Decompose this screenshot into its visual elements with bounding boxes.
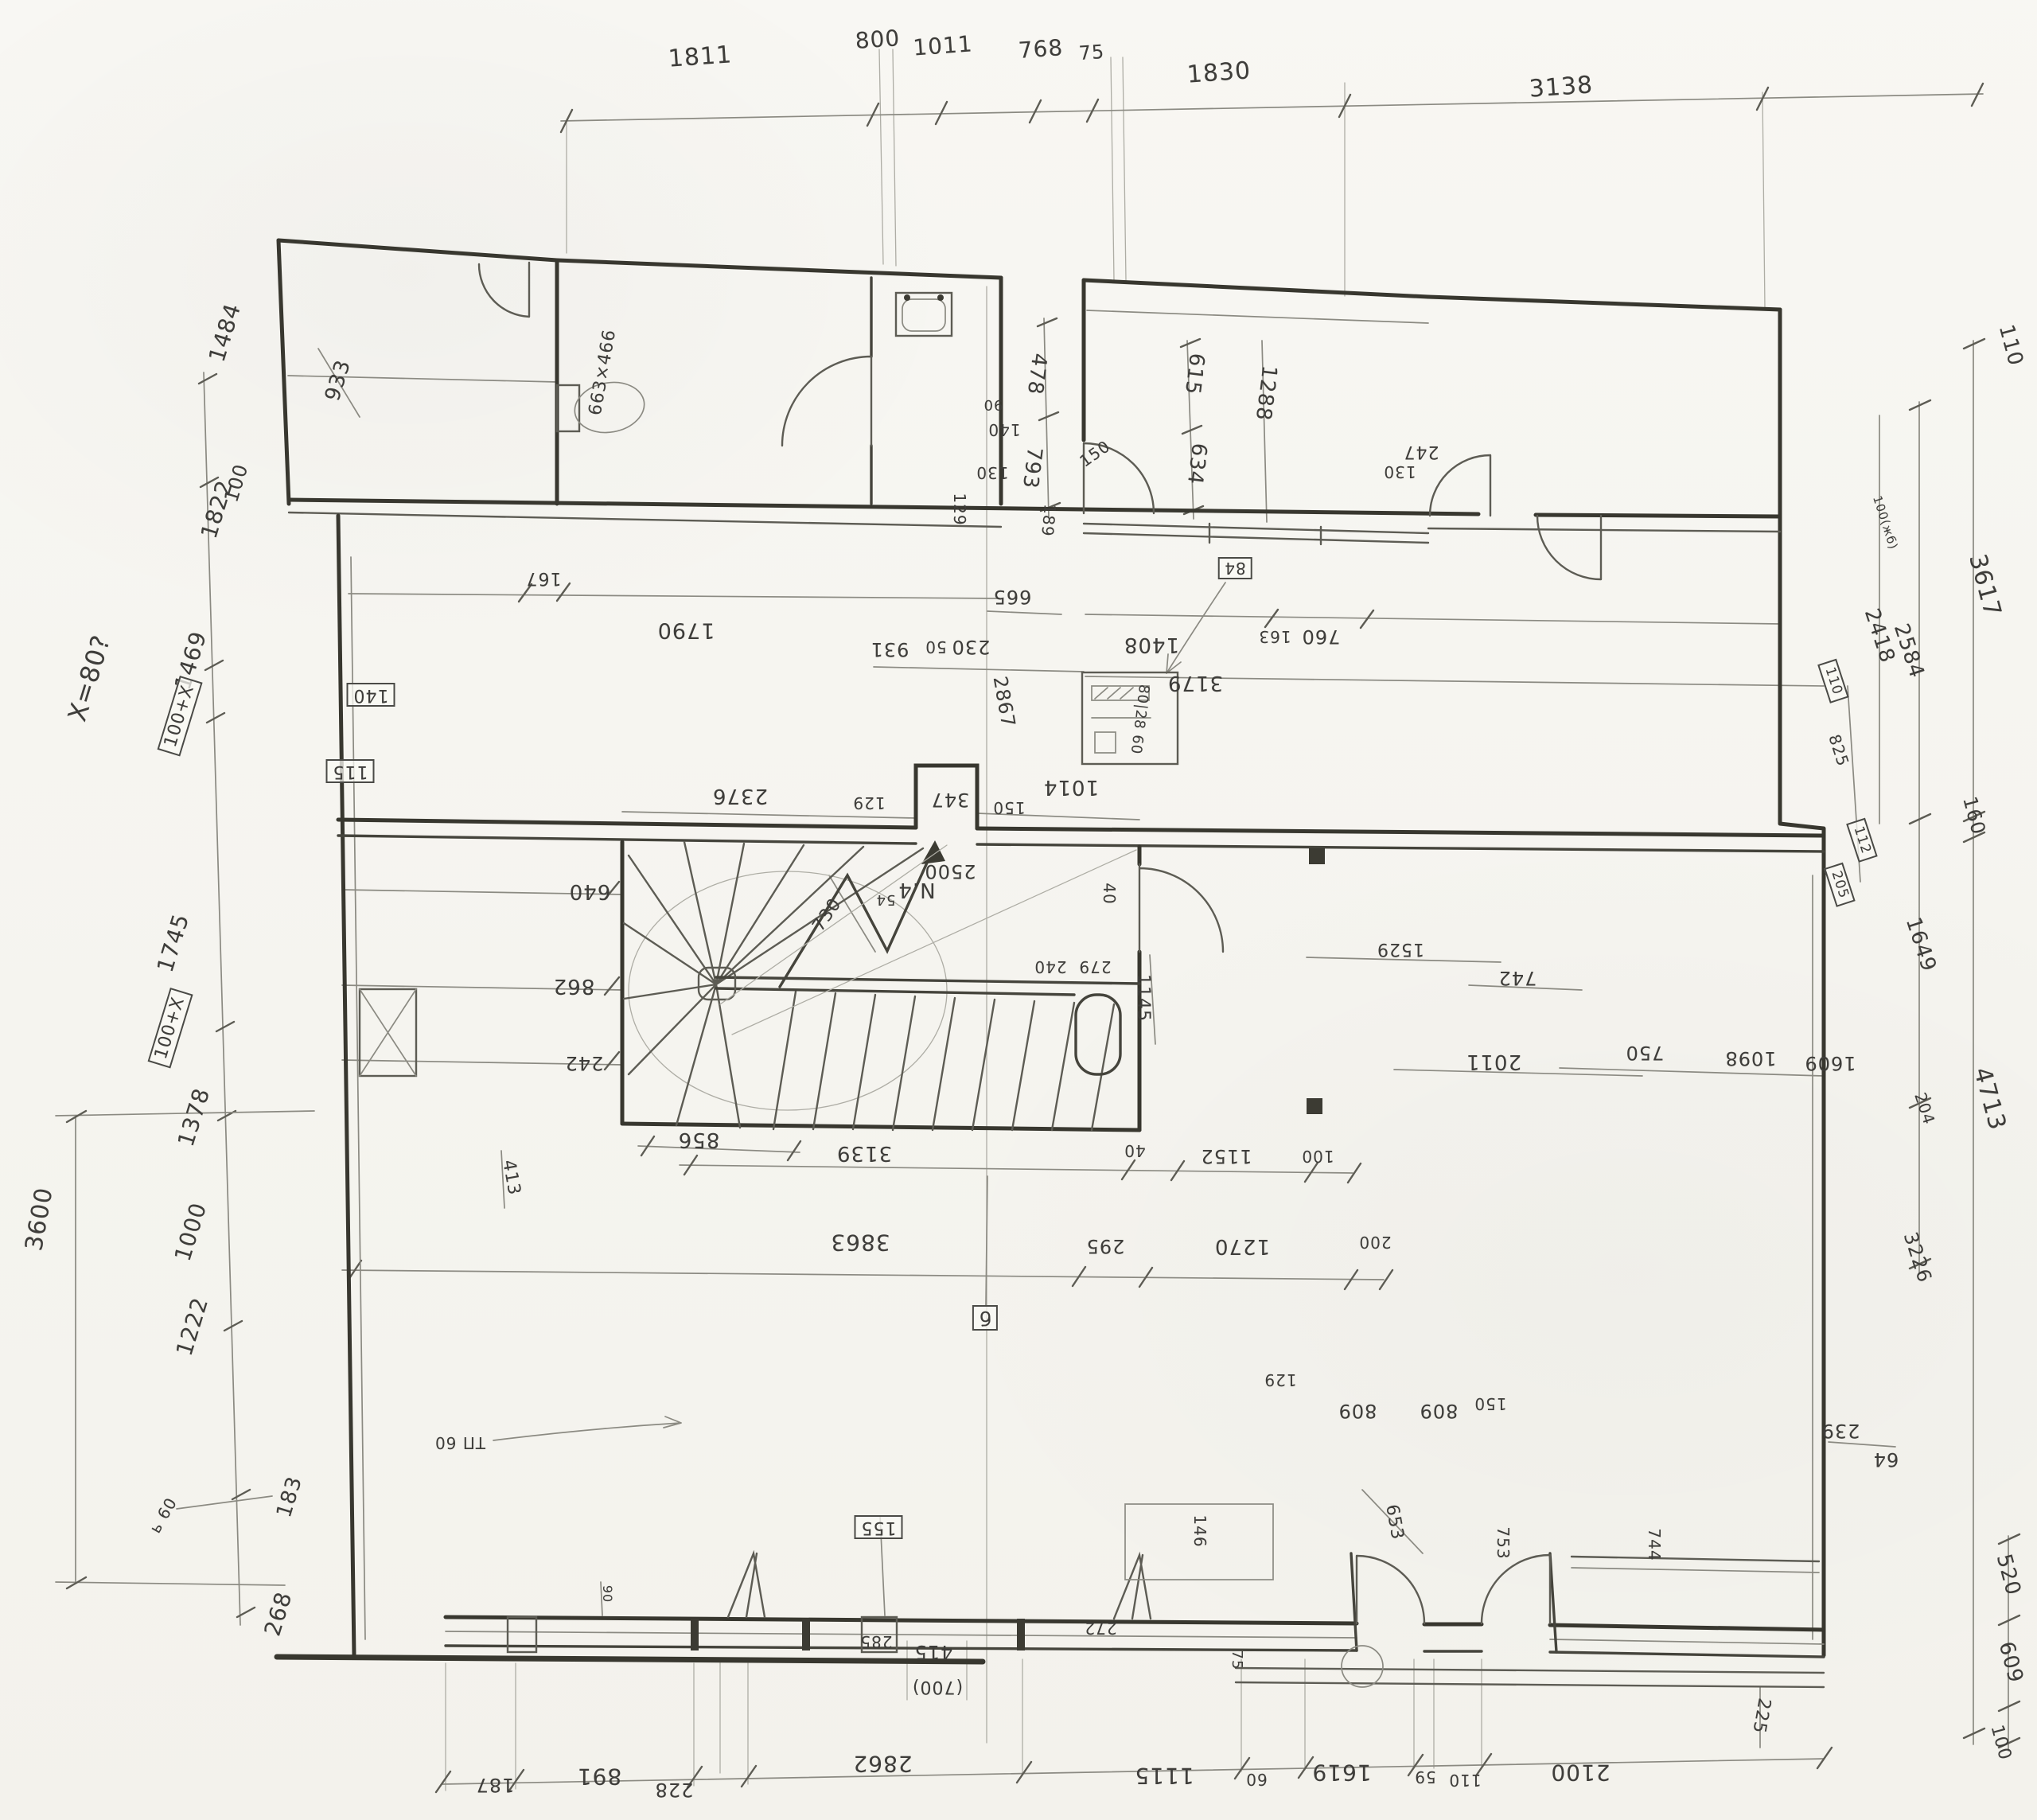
floor-plan-sheet: 18118001011768751830313893314841001822X=… bbox=[0, 0, 2037, 1820]
dimension-lines bbox=[56, 84, 2019, 1792]
toilet-icon bbox=[557, 377, 648, 438]
window-posts bbox=[508, 1553, 1151, 1652]
stove-icon bbox=[1082, 672, 1178, 764]
columns bbox=[1307, 848, 1325, 1114]
floor-plan-drawing bbox=[0, 0, 2037, 1820]
door-arcs bbox=[479, 263, 1601, 1623]
walls bbox=[277, 240, 1824, 1687]
sink-icon bbox=[896, 293, 952, 336]
misc-details bbox=[1125, 1504, 1383, 1687]
spiral-stair bbox=[624, 840, 1139, 1130]
shaft-crossed-box bbox=[360, 989, 416, 1076]
